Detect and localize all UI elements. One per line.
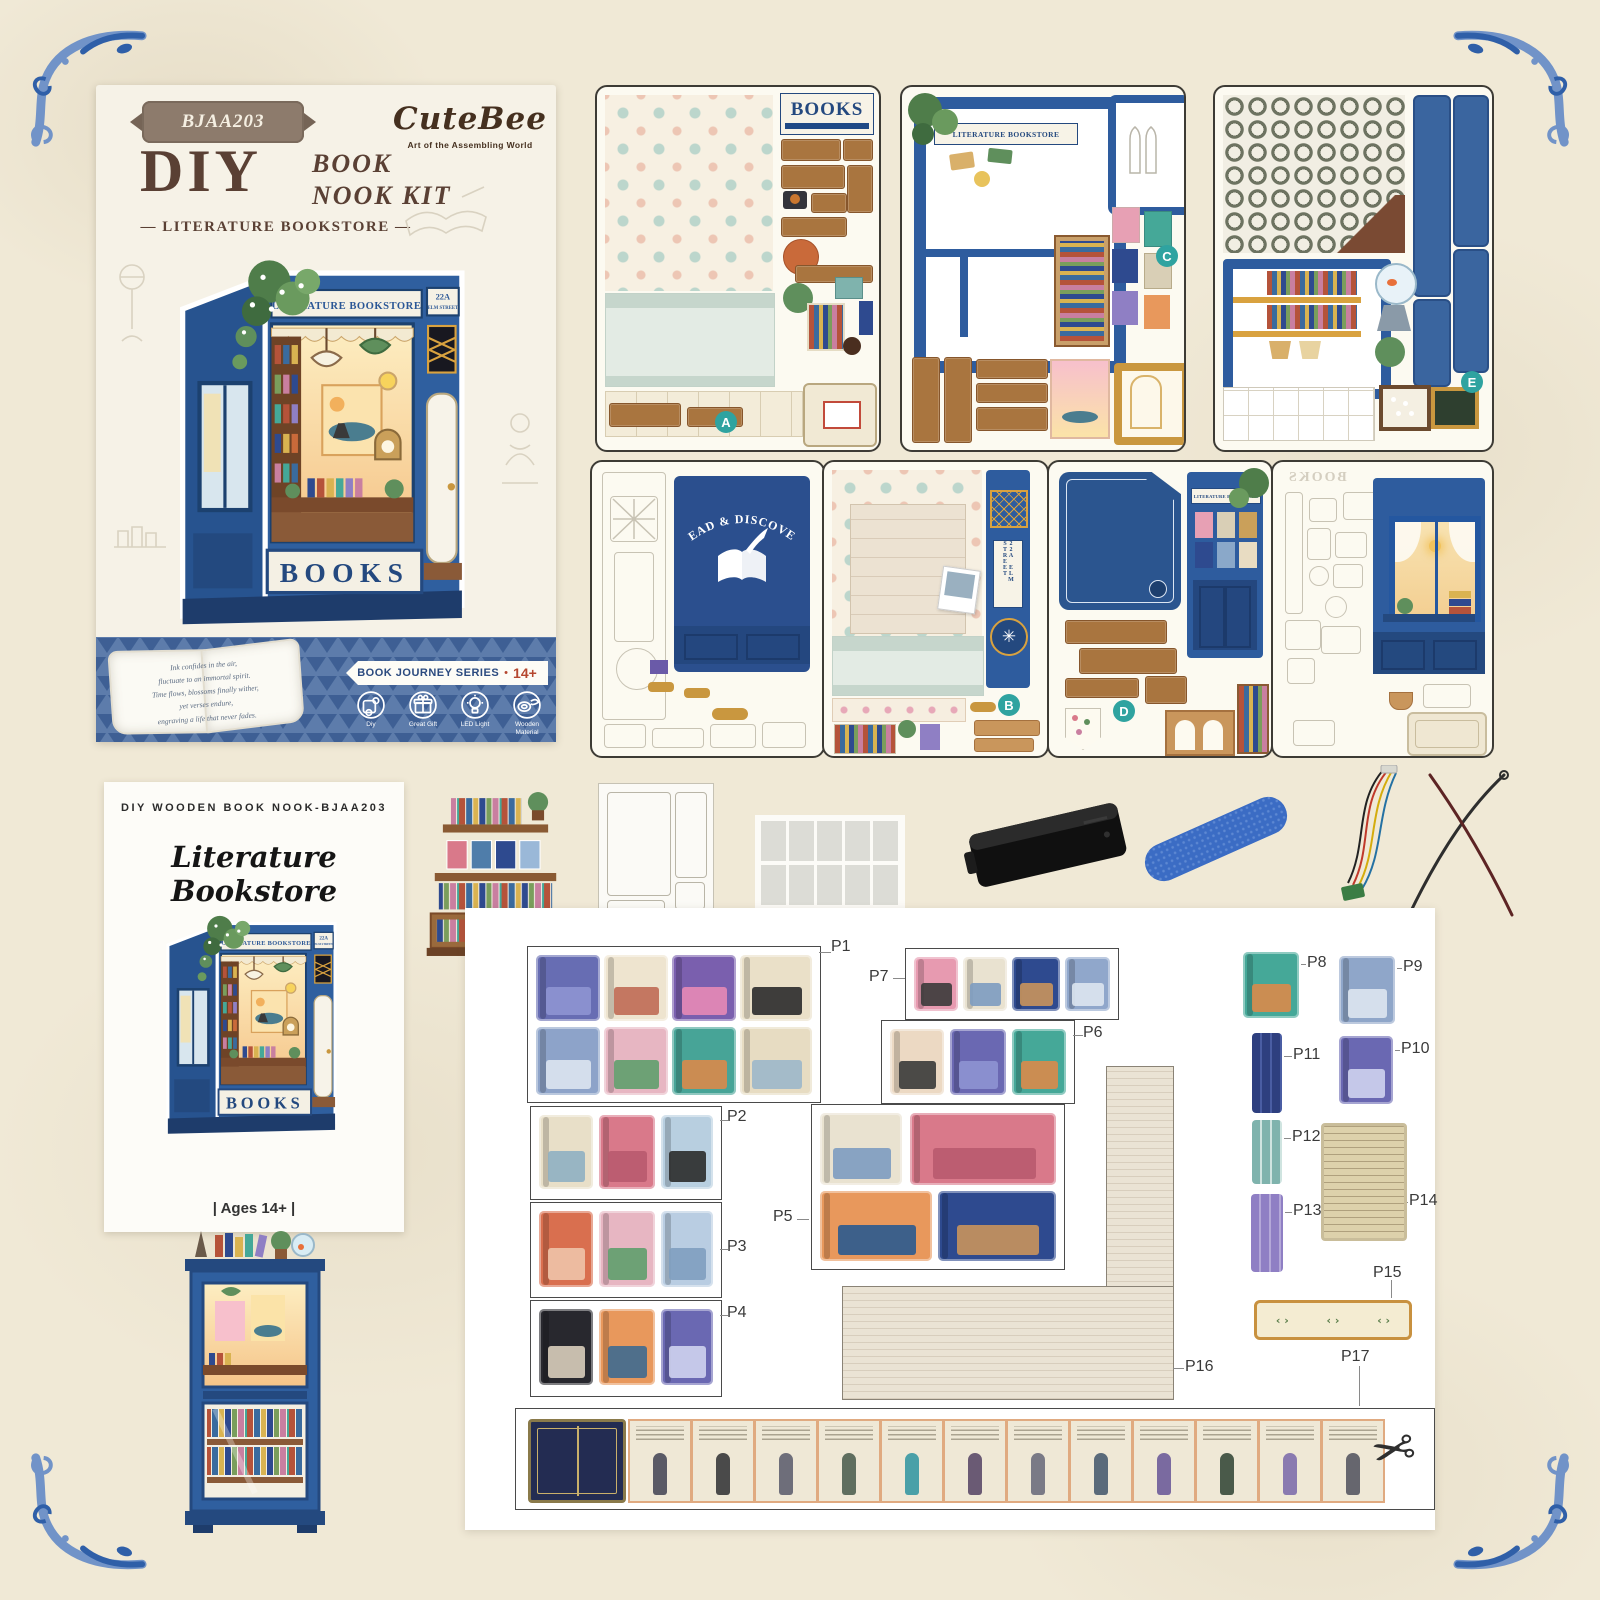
cover-art	[614, 987, 659, 1015]
label-leader-line	[1284, 1138, 1291, 1139]
book-cover	[599, 1309, 655, 1385]
book-cover	[1012, 1029, 1066, 1095]
parts-group	[811, 1104, 1065, 1270]
brand-tagline: Art of the Assembling World	[386, 140, 554, 150]
series-band: Ink confides in the air,fluctuate to an …	[96, 637, 556, 742]
mini-books-part	[1237, 684, 1269, 754]
puzzle-icon	[357, 691, 385, 719]
wood-log-icon	[513, 691, 541, 719]
label-leader-line	[1397, 968, 1402, 969]
book-cover	[1243, 952, 1299, 1018]
plant-part	[898, 720, 916, 738]
lady-figure	[779, 1453, 793, 1495]
cover-art	[548, 1248, 586, 1280]
bulb-part	[974, 171, 990, 187]
sheet-letter-badge: B	[998, 694, 1020, 716]
vintage-page	[691, 1419, 755, 1503]
bookshelf-part	[1054, 235, 1110, 347]
book-cover	[890, 1029, 944, 1095]
parts-group	[527, 946, 821, 1103]
label-leader-line	[720, 1120, 728, 1121]
open-book-graphic: Ink confides in the air,fluctuate to an …	[107, 641, 298, 734]
book-cover	[938, 1191, 1056, 1261]
manual-title: Literature Bookstore	[104, 840, 404, 908]
book-cover	[910, 1113, 1056, 1185]
book-nook-illustration	[154, 235, 499, 637]
label-leader-line	[1173, 1368, 1184, 1369]
camera-part	[783, 191, 807, 209]
label-leader-line	[1284, 1056, 1292, 1057]
vintage-page	[754, 1419, 818, 1503]
book-cover	[661, 1211, 713, 1287]
cover-art	[959, 1061, 998, 1089]
ornate-book-cover	[528, 1419, 626, 1503]
snowflake-medallion-part: ✳	[990, 618, 1028, 656]
part-label: P17	[1341, 1348, 1369, 1366]
corner-panel-part	[1059, 472, 1181, 610]
part-label: P10	[1401, 1040, 1429, 1058]
page-header-engraving	[762, 1426, 810, 1440]
vintage-page	[1258, 1419, 1322, 1503]
cover-art	[921, 983, 952, 1006]
book-cover	[914, 957, 958, 1011]
wallpaper-part	[605, 95, 773, 291]
part-label: P3	[727, 1238, 747, 1256]
sheet-letter-badge: A	[715, 411, 737, 433]
part-label: P6	[1083, 1024, 1103, 1042]
page-header-engraving	[951, 1426, 999, 1440]
book-cover	[536, 1027, 600, 1095]
cover-art	[608, 1151, 647, 1182]
lady-figure	[1031, 1453, 1045, 1495]
manual-header: DIY WOODEN BOOK NOOK-BJAA203	[104, 802, 404, 814]
book-cover	[1012, 957, 1060, 1011]
part-label: P4	[727, 1304, 747, 1322]
lady-figure	[968, 1453, 982, 1495]
mirrored-books-text: BOOKS	[1287, 470, 1347, 486]
book-cover	[604, 955, 668, 1021]
book-cover	[963, 957, 1007, 1011]
book-cover	[599, 1115, 655, 1189]
sunset-poster-part	[1050, 359, 1110, 439]
part-label: P16	[1185, 1358, 1213, 1376]
vintage-strip: ✂	[515, 1408, 1435, 1510]
gold-frame-part	[1431, 387, 1479, 429]
label-leader-line	[1285, 1212, 1292, 1213]
corner-flourish-icon	[1450, 1450, 1578, 1578]
book-cover	[539, 1211, 593, 1287]
page-header-engraving	[699, 1426, 747, 1440]
parts-group	[881, 1020, 1075, 1104]
cover-art	[548, 1346, 586, 1378]
page-header-engraving	[636, 1426, 684, 1440]
cover-art	[1072, 983, 1104, 1006]
vintage-page	[628, 1419, 692, 1503]
book-lamp-part	[987, 148, 1012, 164]
part-sheet-e: E	[1213, 85, 1494, 452]
poem-text: Ink confides in the air,fluctuate to an …	[118, 653, 292, 730]
cover-art	[608, 1248, 647, 1280]
cover-art	[957, 1225, 1040, 1254]
cover-art	[682, 987, 727, 1015]
part-label: P5	[773, 1208, 793, 1226]
cover-art	[669, 1151, 705, 1182]
book-spines	[1252, 1033, 1282, 1113]
book-cover	[672, 1027, 736, 1095]
book-cover	[740, 955, 812, 1021]
parts-group	[905, 948, 1119, 1020]
cover-art	[546, 1060, 591, 1089]
vintage-page	[1069, 1419, 1133, 1503]
book-cover	[1339, 956, 1395, 1024]
border-strip: ‹ ›‹ ›‹ ›	[1254, 1300, 1412, 1340]
part-sheet-read-discover: READ & DISCOVER	[590, 460, 825, 758]
product-collage: { "colors":{"bg":"#f0e9d6","flourish":"#…	[0, 0, 1600, 1600]
sheet-letter-badge: C	[1156, 245, 1178, 267]
cover-art	[546, 987, 591, 1015]
tweezers-accessory	[1402, 765, 1522, 923]
corner-flourish-icon	[22, 1450, 150, 1578]
part-sheet-b: 22A ELM STREET ✳ B	[822, 460, 1049, 758]
book-cover	[820, 1191, 932, 1261]
ivy-part	[902, 87, 972, 153]
photo-part	[937, 566, 981, 615]
label-leader-line	[720, 1249, 728, 1250]
sheet-letter-badge: D	[1113, 700, 1135, 722]
feature-icons: Diy Great Gift LED Light Wooden Material	[348, 691, 550, 737]
border-strip-part	[832, 698, 966, 722]
cover-art	[614, 1060, 659, 1089]
book-cover	[661, 1115, 713, 1189]
part-label: P12	[1292, 1128, 1320, 1146]
part-label: P7	[869, 968, 889, 986]
page-header-engraving	[1140, 1426, 1188, 1440]
chip-part	[650, 660, 668, 674]
book-cover	[950, 1029, 1006, 1095]
lady-figure	[653, 1453, 667, 1495]
part-label: P1	[831, 938, 851, 956]
cover-art	[1348, 1069, 1386, 1098]
cover-art	[899, 1061, 937, 1089]
door-panel-part	[803, 383, 877, 447]
sanding-sponge-accessory	[1139, 791, 1293, 888]
ornate-handle-part	[712, 708, 748, 720]
gold-handle-part	[684, 688, 710, 698]
cover-art	[682, 1060, 727, 1089]
label-leader-line	[1301, 964, 1306, 965]
side-column-part: 22A ELM STREET ✳	[986, 470, 1030, 688]
book-cover	[740, 1027, 812, 1095]
led-wire-accessory	[1318, 765, 1414, 915]
bookcase-part	[1223, 259, 1391, 399]
adhesive-squares-accessory	[755, 815, 905, 911]
part-label: P2	[727, 1108, 747, 1126]
book-spines	[1251, 1194, 1283, 1272]
part-label: P8	[1307, 954, 1327, 972]
basket-part	[1389, 692, 1413, 710]
cover-art	[1348, 989, 1387, 1018]
title-book: BOOK	[312, 149, 392, 179]
box-art: BJAA203 CuteBee Art of the Assembling Wo…	[96, 85, 556, 742]
cover-art	[1020, 983, 1054, 1006]
lady-figure	[905, 1453, 919, 1495]
page-header-engraving	[1203, 1426, 1251, 1440]
page-header-engraving	[1266, 1426, 1314, 1440]
round-dark-part	[843, 337, 861, 355]
books-sign-part: BOOKS	[780, 93, 874, 135]
arch-window-part	[1165, 710, 1235, 756]
part-label: P9	[1403, 958, 1423, 976]
cover-art	[669, 1248, 705, 1280]
vintage-page	[880, 1419, 944, 1503]
lady-figure	[716, 1453, 730, 1495]
spine-part	[859, 301, 873, 335]
part-sheet-a: BOOKS A	[595, 85, 881, 452]
brand-logo: CuteBee Art of the Assembling World	[386, 101, 554, 150]
cover-art	[669, 1346, 705, 1378]
page-header-engraving	[888, 1426, 936, 1440]
paper-parts-panel: P1P7P6P2P3P4P5P8P9P11P10P12P13P14P15‹ ›‹…	[465, 908, 1435, 1530]
lady-figure	[1157, 1453, 1171, 1495]
manual-photo	[159, 900, 349, 1142]
cream-door-part	[1407, 712, 1487, 756]
gold-handle-part	[648, 682, 674, 692]
lady-figure	[1283, 1453, 1297, 1495]
read-discover-panel-part: READ & DISCOVER	[674, 476, 810, 672]
mini-books-part	[834, 724, 896, 754]
part-label: P11	[1293, 1046, 1320, 1064]
battery-box-accessory	[946, 788, 1150, 904]
book-cover	[1065, 957, 1110, 1011]
label-leader-line	[893, 978, 905, 979]
book-lamp-part	[949, 151, 975, 170]
book-cover	[820, 1113, 902, 1185]
cover-art	[933, 1148, 1035, 1178]
book-cover	[661, 1309, 713, 1385]
cover-art	[1252, 984, 1291, 1012]
read-discover-title: READ & DISCOVER	[674, 484, 799, 543]
book-cover	[539, 1309, 593, 1385]
gift-icon	[409, 691, 437, 719]
svg-text:READ & DISCOVER: READ & DISCOVER	[674, 484, 799, 543]
subtitle: LITERATURE BOOKSTORE	[126, 219, 426, 236]
label-leader-line	[819, 952, 831, 953]
part-label: P13	[1293, 1202, 1321, 1220]
gold-key-part	[970, 702, 996, 712]
mini-storefront-part: LITERATURE BOOKSTORE	[1187, 472, 1263, 658]
part-label: P14	[1409, 1192, 1437, 1210]
poster-set-part	[1112, 207, 1176, 341]
parts-group	[530, 1106, 722, 1200]
manual-age: | Ages 14+ |	[104, 1200, 404, 1217]
label-leader-line	[1391, 1280, 1392, 1298]
cover-art	[548, 1151, 586, 1182]
fishbowl-part	[1375, 263, 1417, 305]
page-header-engraving	[1077, 1426, 1125, 1440]
assembled-nook-photo	[163, 1225, 347, 1565]
lamp-sketch-icon	[102, 253, 162, 363]
gold-frame-part	[1114, 363, 1186, 445]
age-badge: 14+	[513, 665, 537, 681]
vintage-page	[943, 1419, 1007, 1503]
mini-frame-part	[920, 724, 940, 750]
parts-group	[530, 1300, 722, 1397]
label-leader-line	[720, 1315, 728, 1316]
frame-part	[835, 277, 863, 299]
book-cover	[1339, 1036, 1393, 1104]
led-bulb-icon	[461, 691, 489, 719]
mini-books-part	[807, 303, 845, 351]
manuscript-sheet	[1321, 1123, 1407, 1241]
page-header-engraving	[1014, 1426, 1062, 1440]
page-header-engraving	[825, 1426, 873, 1440]
book-cover	[536, 955, 600, 1021]
title-diy: DIY	[140, 137, 262, 206]
label-leader-line	[1359, 1366, 1360, 1406]
sheet-letter-badge: E	[1461, 371, 1483, 393]
series-ribbon: BOOK JOURNEY SERIES• 14+	[346, 661, 548, 685]
book-cover	[672, 955, 736, 1021]
cover-art	[752, 1060, 802, 1089]
lady-figure	[842, 1453, 856, 1495]
parts-group	[530, 1202, 722, 1298]
label-leader-line	[797, 1219, 809, 1220]
lady-figure	[1094, 1453, 1108, 1495]
cover-art	[752, 987, 802, 1015]
cover-art	[608, 1346, 647, 1378]
flower-frame-part	[1379, 385, 1431, 431]
plant-part	[1375, 337, 1405, 367]
wainscot-part	[605, 293, 775, 387]
book-cover	[539, 1115, 593, 1189]
cover-art	[838, 1225, 916, 1254]
book-spines	[1252, 1120, 1282, 1184]
tile-floor-part	[1223, 95, 1405, 253]
cover-art	[833, 1148, 890, 1178]
part-sheet-c: LITERATURE BOOKSTORE C	[900, 85, 1186, 452]
bookmark-part	[1065, 708, 1101, 750]
grid-strip-part	[1223, 387, 1375, 441]
part-sheet-window: BOOKS	[1271, 460, 1494, 758]
window-wall-part	[1373, 478, 1485, 674]
vintage-page	[1132, 1419, 1196, 1503]
window-frame-part	[1108, 95, 1186, 215]
lady-figure	[1220, 1453, 1234, 1495]
cover-art	[970, 983, 1001, 1006]
book-cover	[604, 1027, 668, 1095]
brand-name: CuteBee	[386, 101, 554, 137]
label-leader-line	[1073, 1035, 1083, 1036]
part-label: P15	[1373, 1264, 1401, 1282]
book-cover	[599, 1211, 655, 1287]
instruction-manual: DIY WOODEN BOOK NOOK-BJAA203 Literature …	[104, 782, 404, 1232]
vintage-page	[817, 1419, 881, 1503]
label-leader-line	[1395, 1050, 1400, 1051]
vintage-page	[1195, 1419, 1259, 1503]
vintage-page	[1006, 1419, 1070, 1503]
part-sheet-d: LITERATURE BOOKSTORE D	[1047, 460, 1273, 758]
cover-art	[1021, 1061, 1059, 1089]
lady-figure	[1346, 1453, 1360, 1495]
